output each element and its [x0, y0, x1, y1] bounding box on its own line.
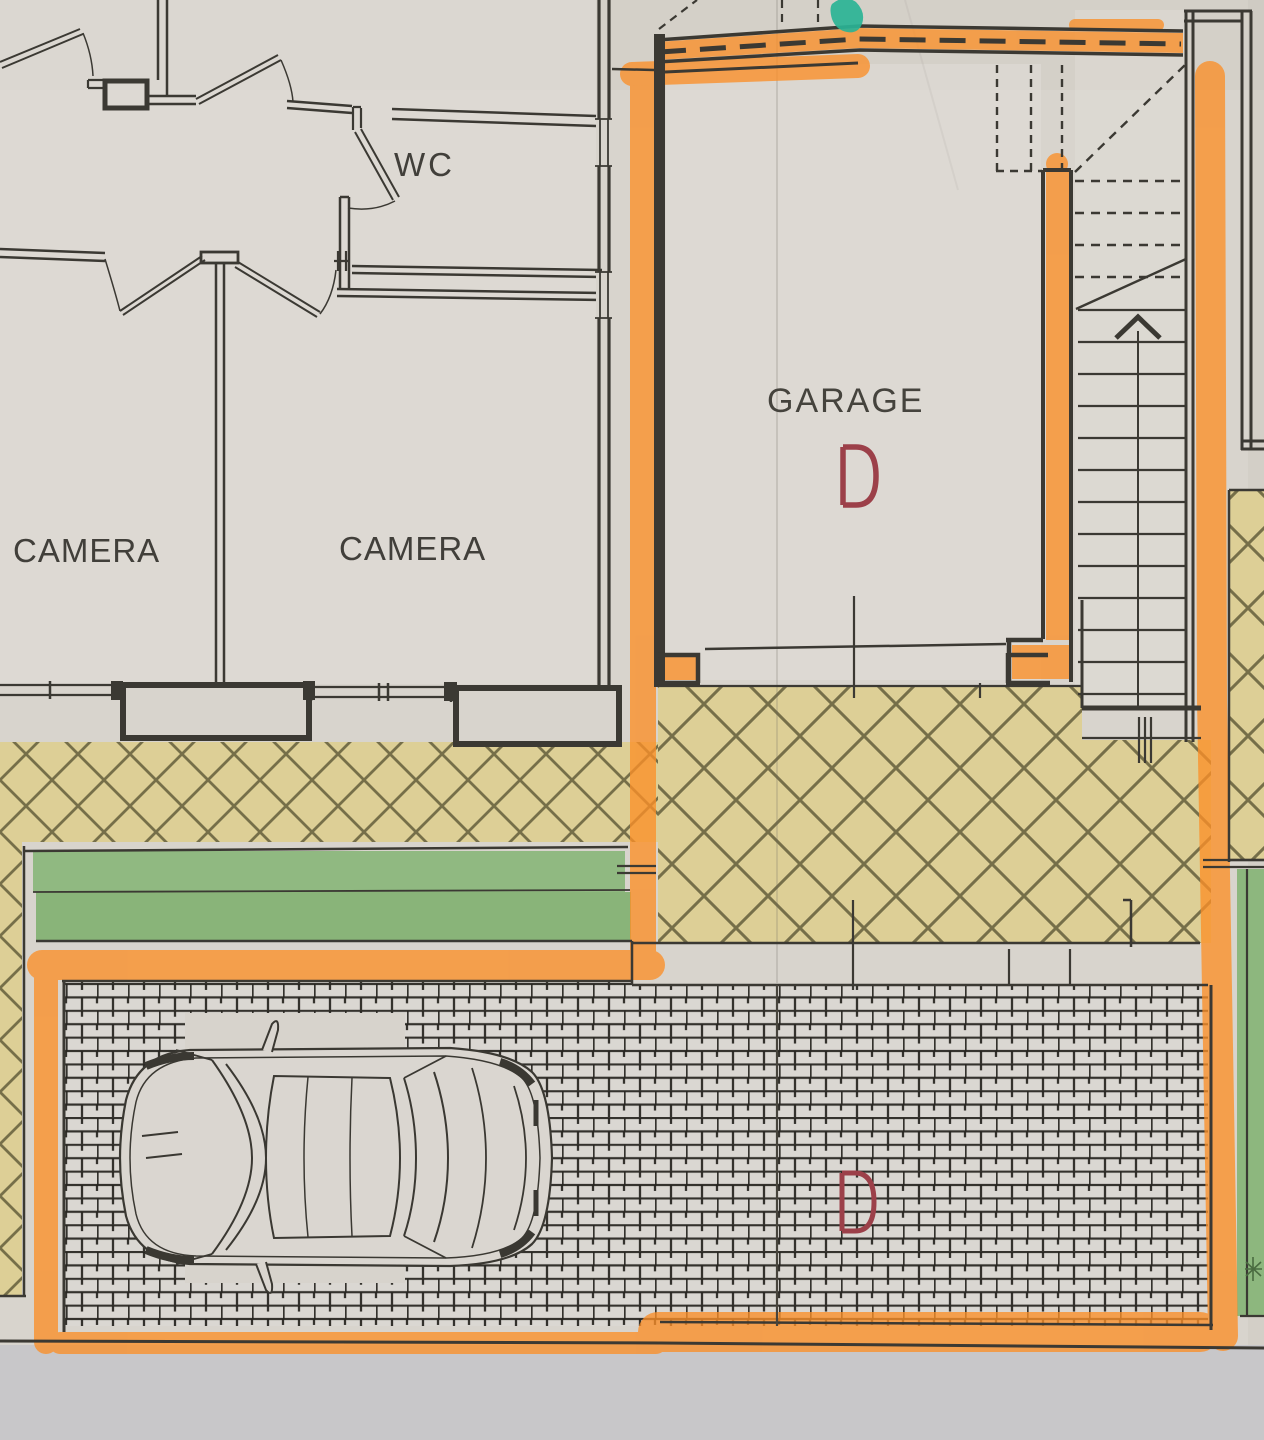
svg-text:CAMERA: CAMERA	[339, 530, 486, 567]
svg-text:WC: WC	[394, 146, 455, 183]
svg-text:GARAGE: GARAGE	[767, 382, 924, 420]
svg-text:CAMERA: CAMERA	[13, 532, 160, 569]
